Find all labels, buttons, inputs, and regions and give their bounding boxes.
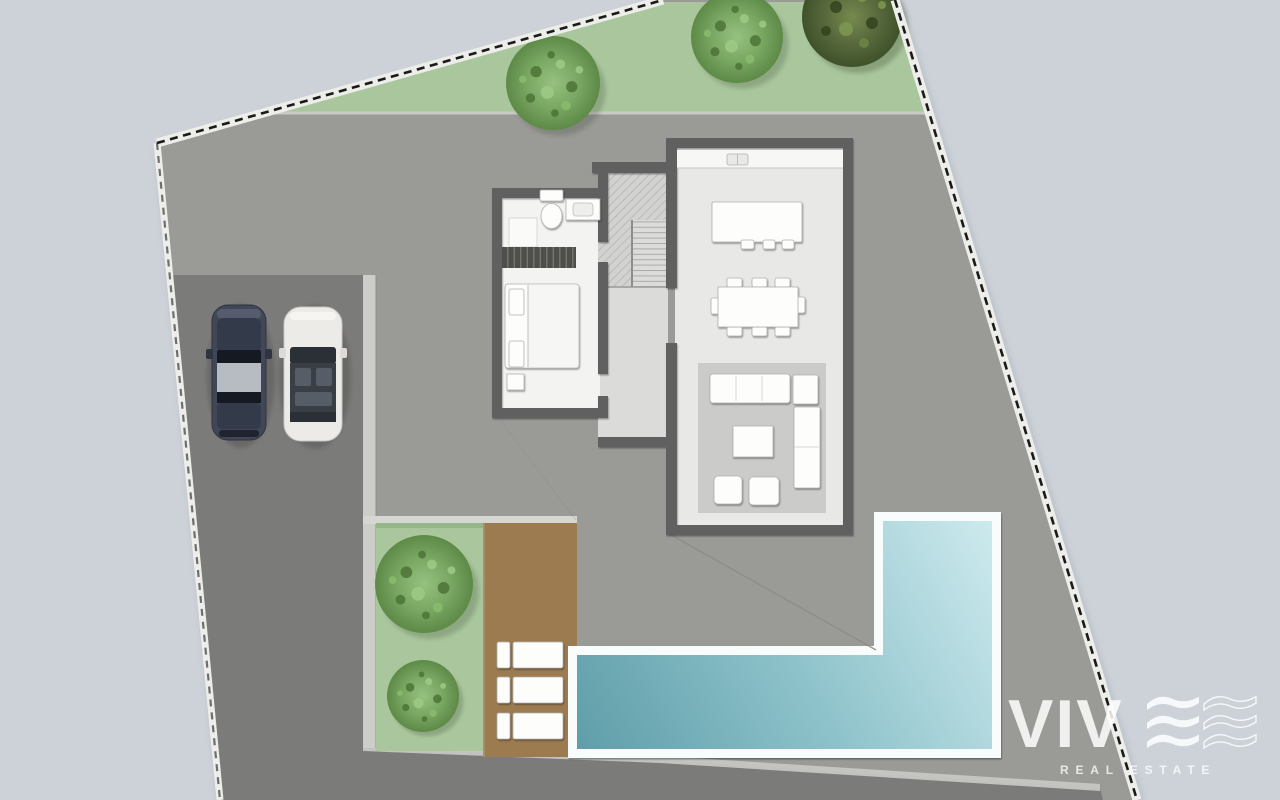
sun-lounger-1	[497, 642, 563, 668]
double-bed	[505, 284, 579, 368]
sun-loungers	[497, 642, 563, 739]
car-seat	[295, 368, 311, 386]
living-room	[698, 363, 826, 513]
pillow	[509, 341, 524, 367]
dining-area	[711, 278, 805, 336]
dining-chair	[727, 278, 742, 287]
dining-chair	[752, 278, 767, 287]
shower-tray	[509, 218, 537, 247]
car-hood	[217, 318, 261, 352]
car-roof	[217, 363, 261, 393]
dining-chair	[752, 327, 767, 336]
staircase	[598, 173, 666, 287]
boundary-wall-strip	[363, 275, 376, 748]
car-mirror	[340, 348, 347, 358]
car-back-seat	[295, 392, 332, 406]
bar-stool	[782, 240, 794, 249]
logo-brand-text: VIV	[1008, 686, 1124, 762]
dining-chair	[727, 327, 742, 336]
site-plan-svg: VIV REAL ESTATE	[0, 0, 1280, 800]
pillow	[509, 289, 524, 315]
bar-stool	[741, 240, 754, 249]
armchair	[793, 375, 818, 404]
bar-stool	[763, 240, 775, 249]
car-trunk	[217, 403, 261, 429]
logo-wavy-e-solid-icon	[1147, 697, 1199, 748]
car-dark	[206, 304, 275, 448]
sun-lounger-2	[497, 677, 563, 703]
car-seat	[316, 368, 332, 386]
kitchen-counter	[677, 150, 843, 168]
sofa	[710, 374, 790, 403]
dining-table	[718, 287, 798, 327]
sink-vanity	[566, 199, 600, 220]
car-mirror	[206, 349, 213, 359]
dining-chair	[775, 278, 790, 287]
car-white	[279, 305, 351, 449]
site-plan-image: VIV REAL ESTATE	[0, 0, 1280, 800]
car-mirror	[265, 349, 272, 359]
coffee-table	[733, 426, 773, 457]
kitchen-island	[712, 202, 802, 249]
pouf	[749, 477, 779, 505]
garden-top-edging	[363, 516, 577, 524]
sun-lounger-3	[497, 713, 563, 739]
car-windshield	[217, 350, 261, 364]
car-rear-window	[217, 392, 261, 403]
car-mirror	[279, 348, 286, 358]
garden-grass-shadow-edge	[376, 523, 483, 528]
car-rear-window	[290, 412, 336, 422]
dining-chair	[775, 327, 790, 336]
kitchen-sink	[727, 154, 748, 165]
nightstand	[507, 374, 524, 390]
wardrobe	[502, 247, 576, 268]
pouf	[714, 476, 742, 504]
toilet	[540, 190, 563, 229]
car-windshield	[290, 347, 336, 364]
logo-tagline-text: REAL ESTATE	[1060, 763, 1216, 777]
